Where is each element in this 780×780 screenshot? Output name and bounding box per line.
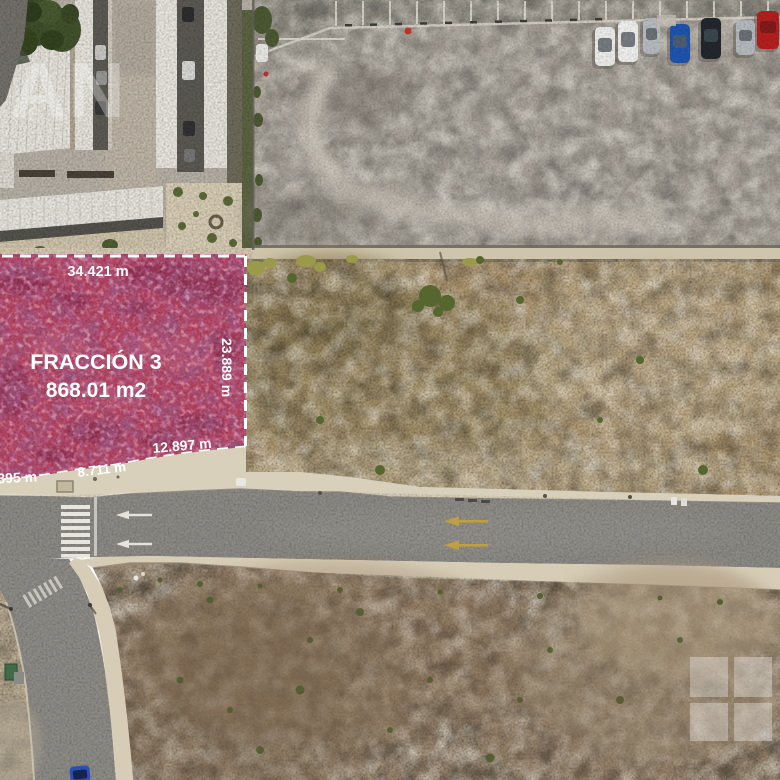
svg-text:34.421 m: 34.421 m [67, 264, 128, 280]
svg-text:es: es [27, 99, 81, 127]
svg-text:23.889 m: 23.889 m [219, 338, 235, 397]
svg-text:FRACCIÓN 3: FRACCIÓN 3 [30, 349, 161, 374]
svg-text:868.01 m2: 868.01 m2 [46, 379, 146, 402]
svg-text:1.395 m: 1.395 m [0, 468, 37, 487]
